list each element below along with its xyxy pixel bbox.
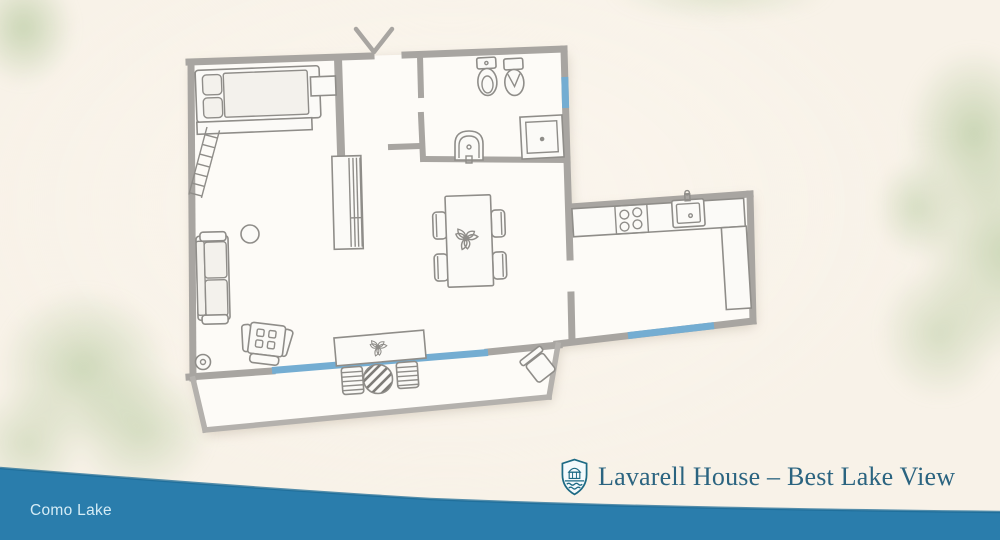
chevron-door-icon	[356, 29, 392, 52]
kitchen-counter-icon	[721, 226, 751, 309]
window-bathroom	[565, 77, 566, 108]
scene: { "brand": { "title": "Lavarell House – …	[0, 0, 1000, 540]
shower-icon	[520, 115, 564, 159]
pillow-icon	[202, 74, 222, 95]
bathroom-sink-icon	[455, 131, 483, 163]
terrace-stool-icon	[396, 361, 419, 388]
dining-chair-icon	[434, 254, 448, 281]
dining-chair-icon	[491, 210, 505, 237]
wardrobe-icon	[332, 156, 363, 250]
toilet-icon	[477, 57, 498, 96]
dining-chair-icon	[492, 252, 506, 279]
dining-chair-icon	[433, 212, 447, 239]
bed	[195, 65, 337, 122]
terrace-stool-icon	[341, 366, 364, 394]
floor-lamp-icon	[196, 355, 211, 370]
nightstand-icon	[310, 76, 336, 96]
shield-house-lake-icon	[560, 458, 589, 496]
side-table-icon	[241, 225, 259, 243]
pillow-icon	[203, 97, 223, 118]
brand-title: Lavarell House – Best Lake View	[598, 462, 955, 492]
lake-label: Como Lake	[30, 502, 112, 520]
brand: Lavarell House – Best Lake View	[560, 458, 955, 496]
sofa	[196, 232, 230, 325]
bidet-icon	[504, 58, 525, 96]
